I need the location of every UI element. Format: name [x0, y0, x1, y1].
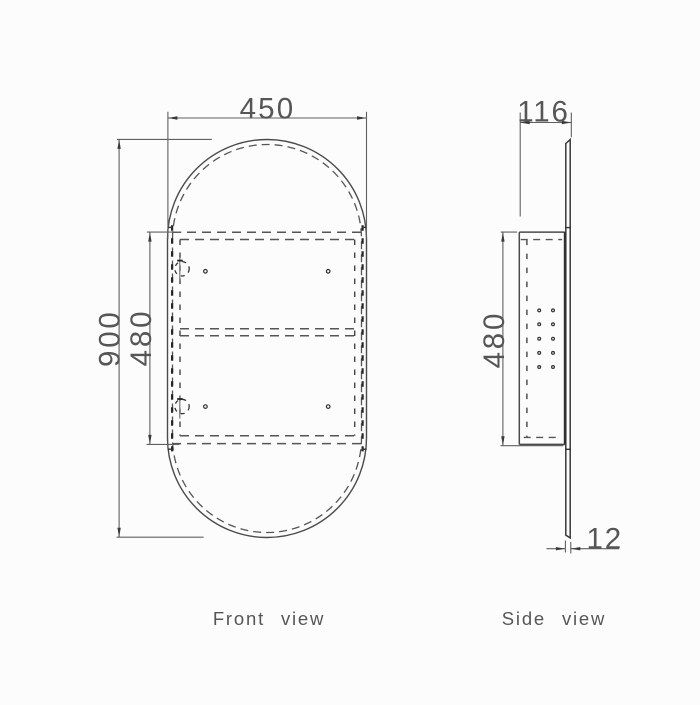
- svg-text:900: 900: [94, 309, 127, 367]
- svg-text:480: 480: [125, 309, 158, 367]
- svg-text:Front view: Front view: [213, 608, 325, 629]
- svg-text:12: 12: [587, 523, 623, 556]
- svg-text:480: 480: [478, 311, 511, 369]
- svg-text:450: 450: [240, 92, 296, 125]
- svg-text:Side view: Side view: [502, 608, 606, 629]
- svg-text:116: 116: [517, 96, 569, 129]
